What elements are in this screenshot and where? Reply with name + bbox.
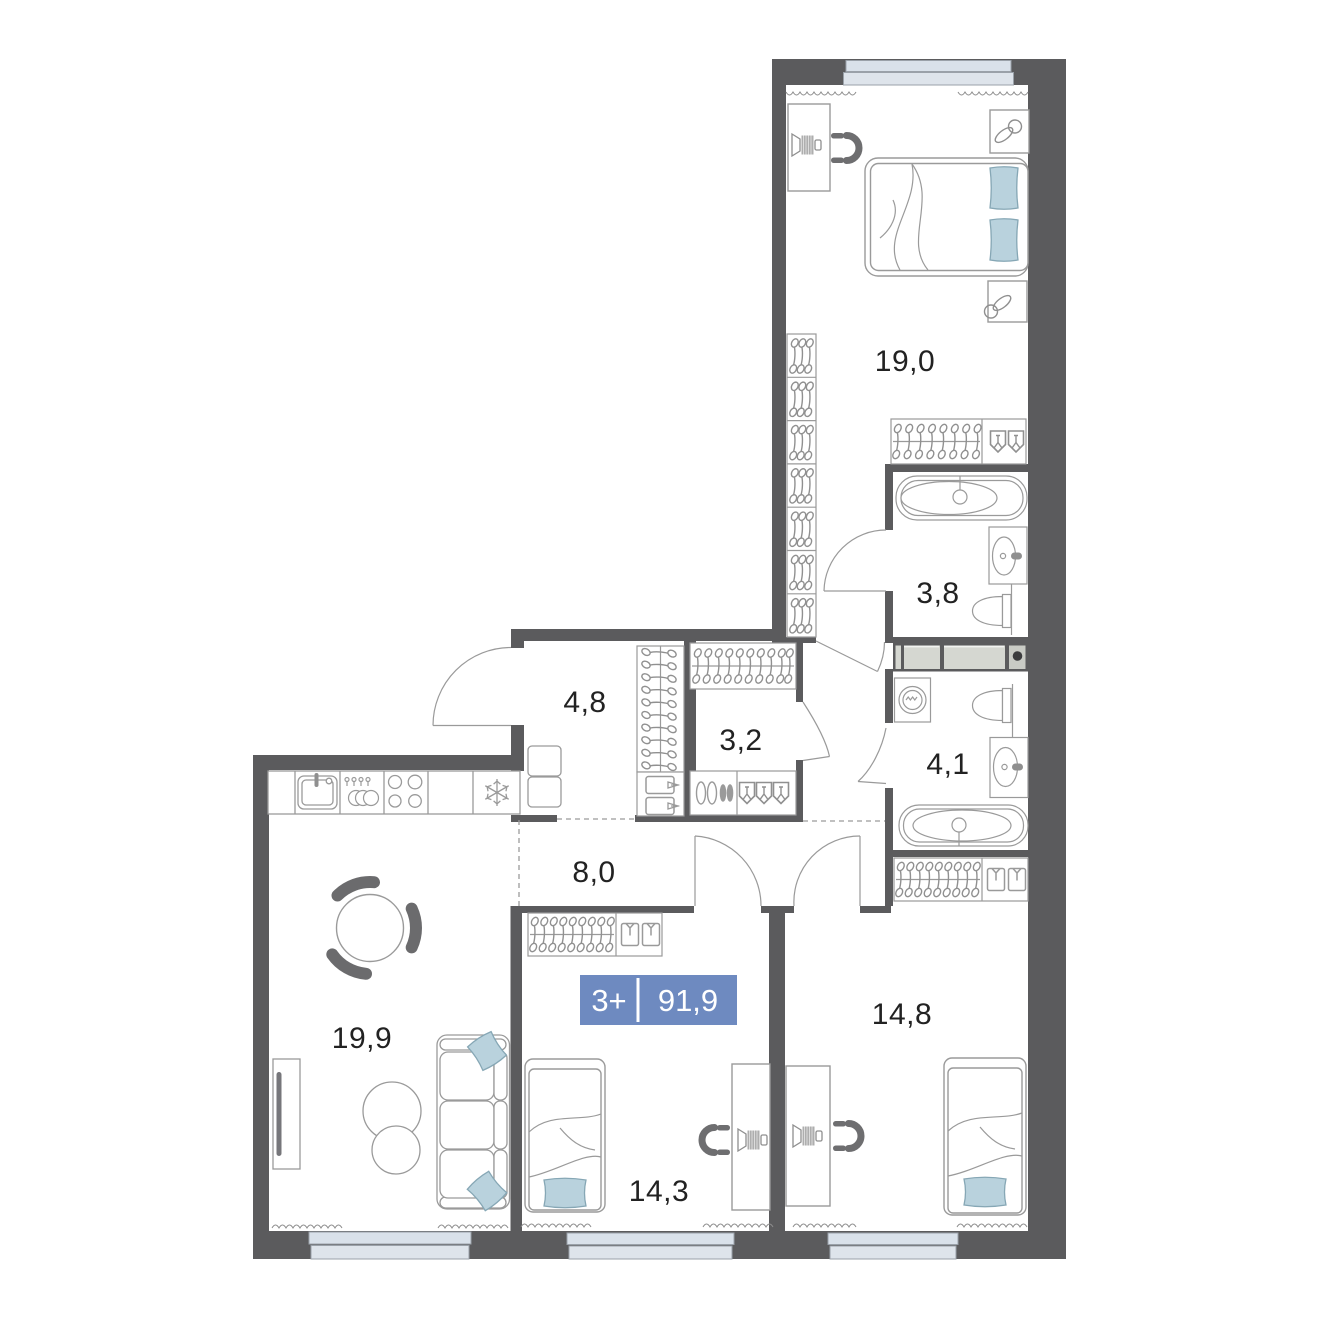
svg-text:8,0: 8,0 [572, 856, 615, 889]
svg-text:14,8: 14,8 [872, 998, 932, 1031]
svg-text:4,1: 4,1 [926, 748, 969, 781]
svg-text:14,3: 14,3 [629, 1175, 689, 1208]
svg-text:91,9: 91,9 [658, 983, 718, 1018]
svg-text:3,2: 3,2 [719, 724, 762, 757]
svg-text:19,9: 19,9 [332, 1022, 392, 1055]
svg-text:4,8: 4,8 [563, 686, 606, 719]
svg-text:3+: 3+ [591, 983, 626, 1018]
svg-text:3,8: 3,8 [916, 577, 959, 610]
svg-text:19,0: 19,0 [875, 345, 935, 378]
